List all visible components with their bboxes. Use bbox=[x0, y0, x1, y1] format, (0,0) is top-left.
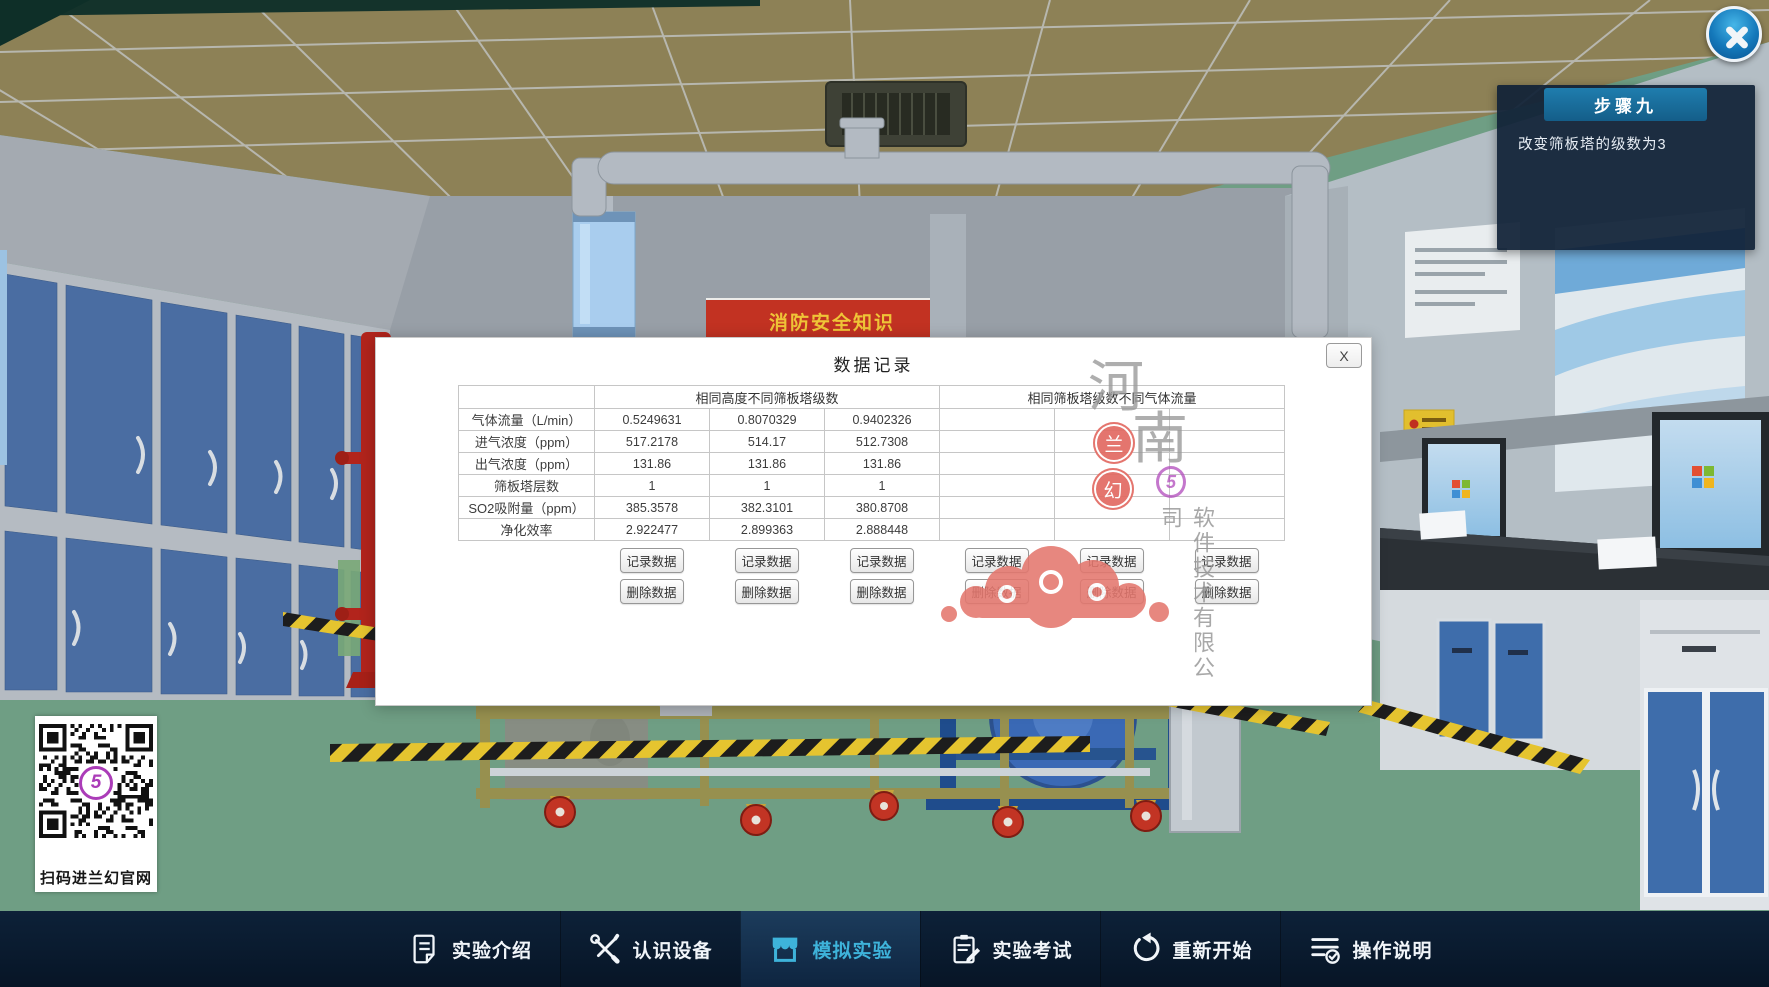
left-glass-sliver bbox=[0, 250, 7, 465]
bottom-nav: 实验介绍 认识设备 模拟实验 bbox=[0, 911, 1769, 987]
nav-label: 实验考试 bbox=[992, 936, 1072, 963]
record-buttons-row: 记录数据 记录数据 记录数据 记录数据 记录数据 记录数据 bbox=[458, 548, 1284, 573]
dialog-title: 数据记录 bbox=[376, 351, 1371, 376]
nav-item-intro[interactable]: 实验介绍 bbox=[380, 911, 560, 987]
record-data-button-5[interactable]: 记录数据 bbox=[1080, 548, 1144, 573]
row-label: 进气浓度（ppm） bbox=[459, 431, 595, 453]
absorption-column bbox=[573, 196, 635, 337]
data-record-dialog: 数据记录 X 相同高度不同筛板塔级数 相同筛板塔级数不同气体流量 气体流量（L/… bbox=[375, 337, 1372, 706]
delete-data-button-4[interactable]: 删除数据 bbox=[965, 579, 1029, 604]
step-title: 步骤九 bbox=[1544, 88, 1707, 121]
row-label: SO2吸附量（ppm） bbox=[459, 497, 595, 519]
delete-buttons-row: 删除数据 删除数据 删除数据 删除数据 删除数据 删除数据 bbox=[458, 579, 1284, 604]
record-data-button-2[interactable]: 记录数据 bbox=[735, 548, 799, 573]
storefront-icon bbox=[768, 932, 802, 966]
group-header-2: 相同筛板塔级数不同气体流量 bbox=[940, 386, 1285, 409]
nav-label: 实验介绍 bbox=[452, 936, 532, 963]
wall-pipe bbox=[930, 214, 966, 344]
nav-item-equipment[interactable]: 认识设备 bbox=[560, 911, 740, 987]
lanhuan-logo: 5 bbox=[79, 766, 113, 800]
qr-code-block: 5 扫码进兰幻官网 bbox=[35, 716, 157, 892]
group-header-1: 相同高度不同筛板塔级数 bbox=[595, 386, 940, 409]
table-header-row: 相同高度不同筛板塔级数 相同筛板塔级数不同气体流量 bbox=[459, 386, 1285, 409]
nav-label: 重新开始 bbox=[1172, 936, 1252, 963]
dialog-close-button[interactable]: X bbox=[1326, 343, 1362, 368]
delete-data-button-3[interactable]: 删除数据 bbox=[850, 579, 914, 604]
step-description: 改变筛板塔的级数为3 bbox=[1518, 133, 1743, 154]
restart-icon bbox=[1128, 932, 1162, 966]
list-check-icon bbox=[1308, 932, 1342, 966]
nav-item-exam[interactable]: 实验考试 bbox=[920, 911, 1100, 987]
nav-item-simulation[interactable]: 模拟实验 bbox=[740, 911, 920, 987]
row-label: 气体流量（L/min） bbox=[459, 409, 595, 431]
poster-title: 消防安全知识 bbox=[769, 311, 895, 334]
nav-label: 模拟实验 bbox=[812, 936, 892, 963]
data-table: 相同高度不同筛板塔级数 相同筛板塔级数不同气体流量 气体流量（L/min） 0.… bbox=[458, 385, 1285, 541]
app-close-button[interactable] bbox=[1706, 6, 1762, 62]
row-label: 净化效率 bbox=[459, 519, 595, 541]
record-data-button-3[interactable]: 记录数据 bbox=[850, 548, 914, 573]
nav-label: 操作说明 bbox=[1352, 936, 1432, 963]
step-panel: 步骤九 改变筛板塔的级数为3 bbox=[1497, 85, 1755, 250]
tools-icon bbox=[588, 932, 622, 966]
record-data-button-1[interactable]: 记录数据 bbox=[620, 548, 684, 573]
table-row: 出气浓度（ppm） 131.86 131.86 131.86 bbox=[459, 453, 1285, 475]
delete-data-button-6[interactable]: 删除数据 bbox=[1195, 579, 1259, 604]
table-row: 进气浓度（ppm） 517.2178 514.17 512.7308 bbox=[459, 431, 1285, 453]
nav-item-restart[interactable]: 重新开始 bbox=[1100, 911, 1280, 987]
record-data-button-4[interactable]: 记录数据 bbox=[965, 548, 1029, 573]
app-window: 消防安全知识 bbox=[0, 0, 1769, 987]
delete-data-button-2[interactable]: 删除数据 bbox=[735, 579, 799, 604]
table-row: 净化效率 2.922477 2.899363 2.888448 bbox=[459, 519, 1285, 541]
nav-item-instructions[interactable]: 操作说明 bbox=[1280, 911, 1460, 987]
record-data-button-6[interactable]: 记录数据 bbox=[1195, 548, 1259, 573]
document-icon bbox=[408, 932, 442, 966]
clipboard-pencil-icon bbox=[948, 932, 982, 966]
qr-caption: 扫码进兰幻官网 bbox=[35, 867, 157, 888]
row-label: 出气浓度（ppm） bbox=[459, 453, 595, 475]
delete-data-button-1[interactable]: 删除数据 bbox=[620, 579, 684, 604]
row-label: 筛板塔层数 bbox=[459, 475, 595, 497]
nav-label: 认识设备 bbox=[632, 936, 712, 963]
table-row: 筛板塔层数 1 1 1 bbox=[459, 475, 1285, 497]
table-row: 气体流量（L/min） 0.5249631 0.8070329 0.940232… bbox=[459, 409, 1285, 431]
table-row: SO2吸附量（ppm） 385.3578 382.3101 380.8708 bbox=[459, 497, 1285, 519]
right-cabinet bbox=[1640, 600, 1769, 910]
lockers bbox=[0, 262, 390, 700]
monitor bbox=[1652, 412, 1769, 564]
delete-data-button-5[interactable]: 删除数据 bbox=[1080, 579, 1144, 604]
